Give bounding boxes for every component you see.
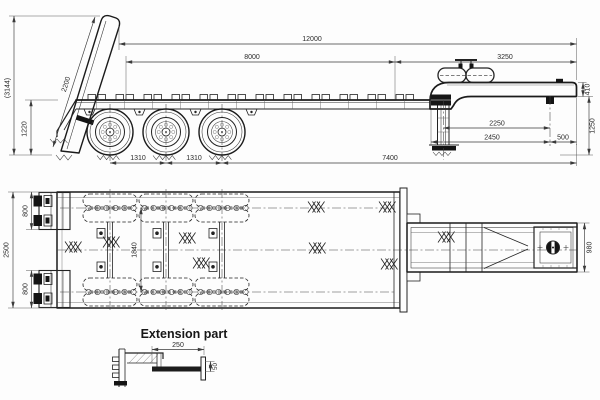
deck-profile [50, 100, 432, 143]
extension-end-plate [201, 357, 206, 380]
dim-overall-length: 12000 [302, 36, 322, 43]
dim-rear-axle-to-front: 7400 [382, 155, 398, 162]
dim-overall-width: 2500 [4, 242, 11, 258]
extension-title: Extension part [141, 327, 229, 341]
trailer-drawing-svg: 12000 8000 3250 2200 (3144) 1220 1310 13… [0, 0, 600, 400]
dim-axle-spacing-rear: 1310 [186, 155, 202, 162]
dim-extension-length: 250 [172, 342, 184, 349]
dim-tire-track: 1840 [132, 242, 139, 258]
dim-ramp-width-top: 800 [23, 205, 30, 217]
wheels [87, 104, 245, 162]
ground-hatch [50, 139, 68, 143]
dim-deck-height: 1220 [22, 121, 29, 137]
gooseneck [430, 79, 577, 109]
dim-neck-width: 980 [587, 242, 594, 254]
extension-detail: Extension part 250 50 [113, 327, 229, 387]
wheel-1 [87, 104, 133, 162]
dim-gooseneck-length: 3250 [497, 54, 513, 61]
dim-kingpin-setback: 500 [557, 135, 569, 142]
dim-axle-spacing-front: 1310 [130, 155, 146, 162]
dim-platform-length: 8000 [244, 54, 260, 61]
dim-extension-height: 50 [212, 363, 219, 370]
dim-deck-to-kingpin: 2450 [484, 135, 500, 142]
extension-plank [152, 367, 204, 372]
ground-hatch [56, 155, 72, 160]
dim-ramp-width-bottom: 800 [23, 283, 30, 295]
dim-support-to-kingpin: 2250 [489, 121, 505, 128]
rope-hook [556, 79, 563, 83]
wheel-3 [199, 104, 245, 162]
plan-view: 2500 800 800 1840 980 [4, 188, 594, 312]
dim-overall-height: (3144) [5, 78, 12, 98]
neck-lug-top [407, 214, 420, 223]
dim-ramp-length: 2200 [61, 76, 72, 93]
extension-drawing [113, 349, 206, 387]
dim-neck-beam-depth: 410 [585, 84, 592, 96]
dim-fifth-wheel-height: 1250 [590, 118, 597, 134]
wheel-2 [143, 104, 189, 162]
ramp-cylinder [76, 115, 95, 125]
technical-drawing-page: 12000 8000 3250 2200 (3144) 1220 1310 13… [0, 0, 600, 400]
side-view: 12000 8000 3250 2200 (3144) 1220 1310 13… [5, 16, 597, 166]
spare-tire [438, 60, 494, 83]
neck-lug-bottom [407, 272, 420, 281]
